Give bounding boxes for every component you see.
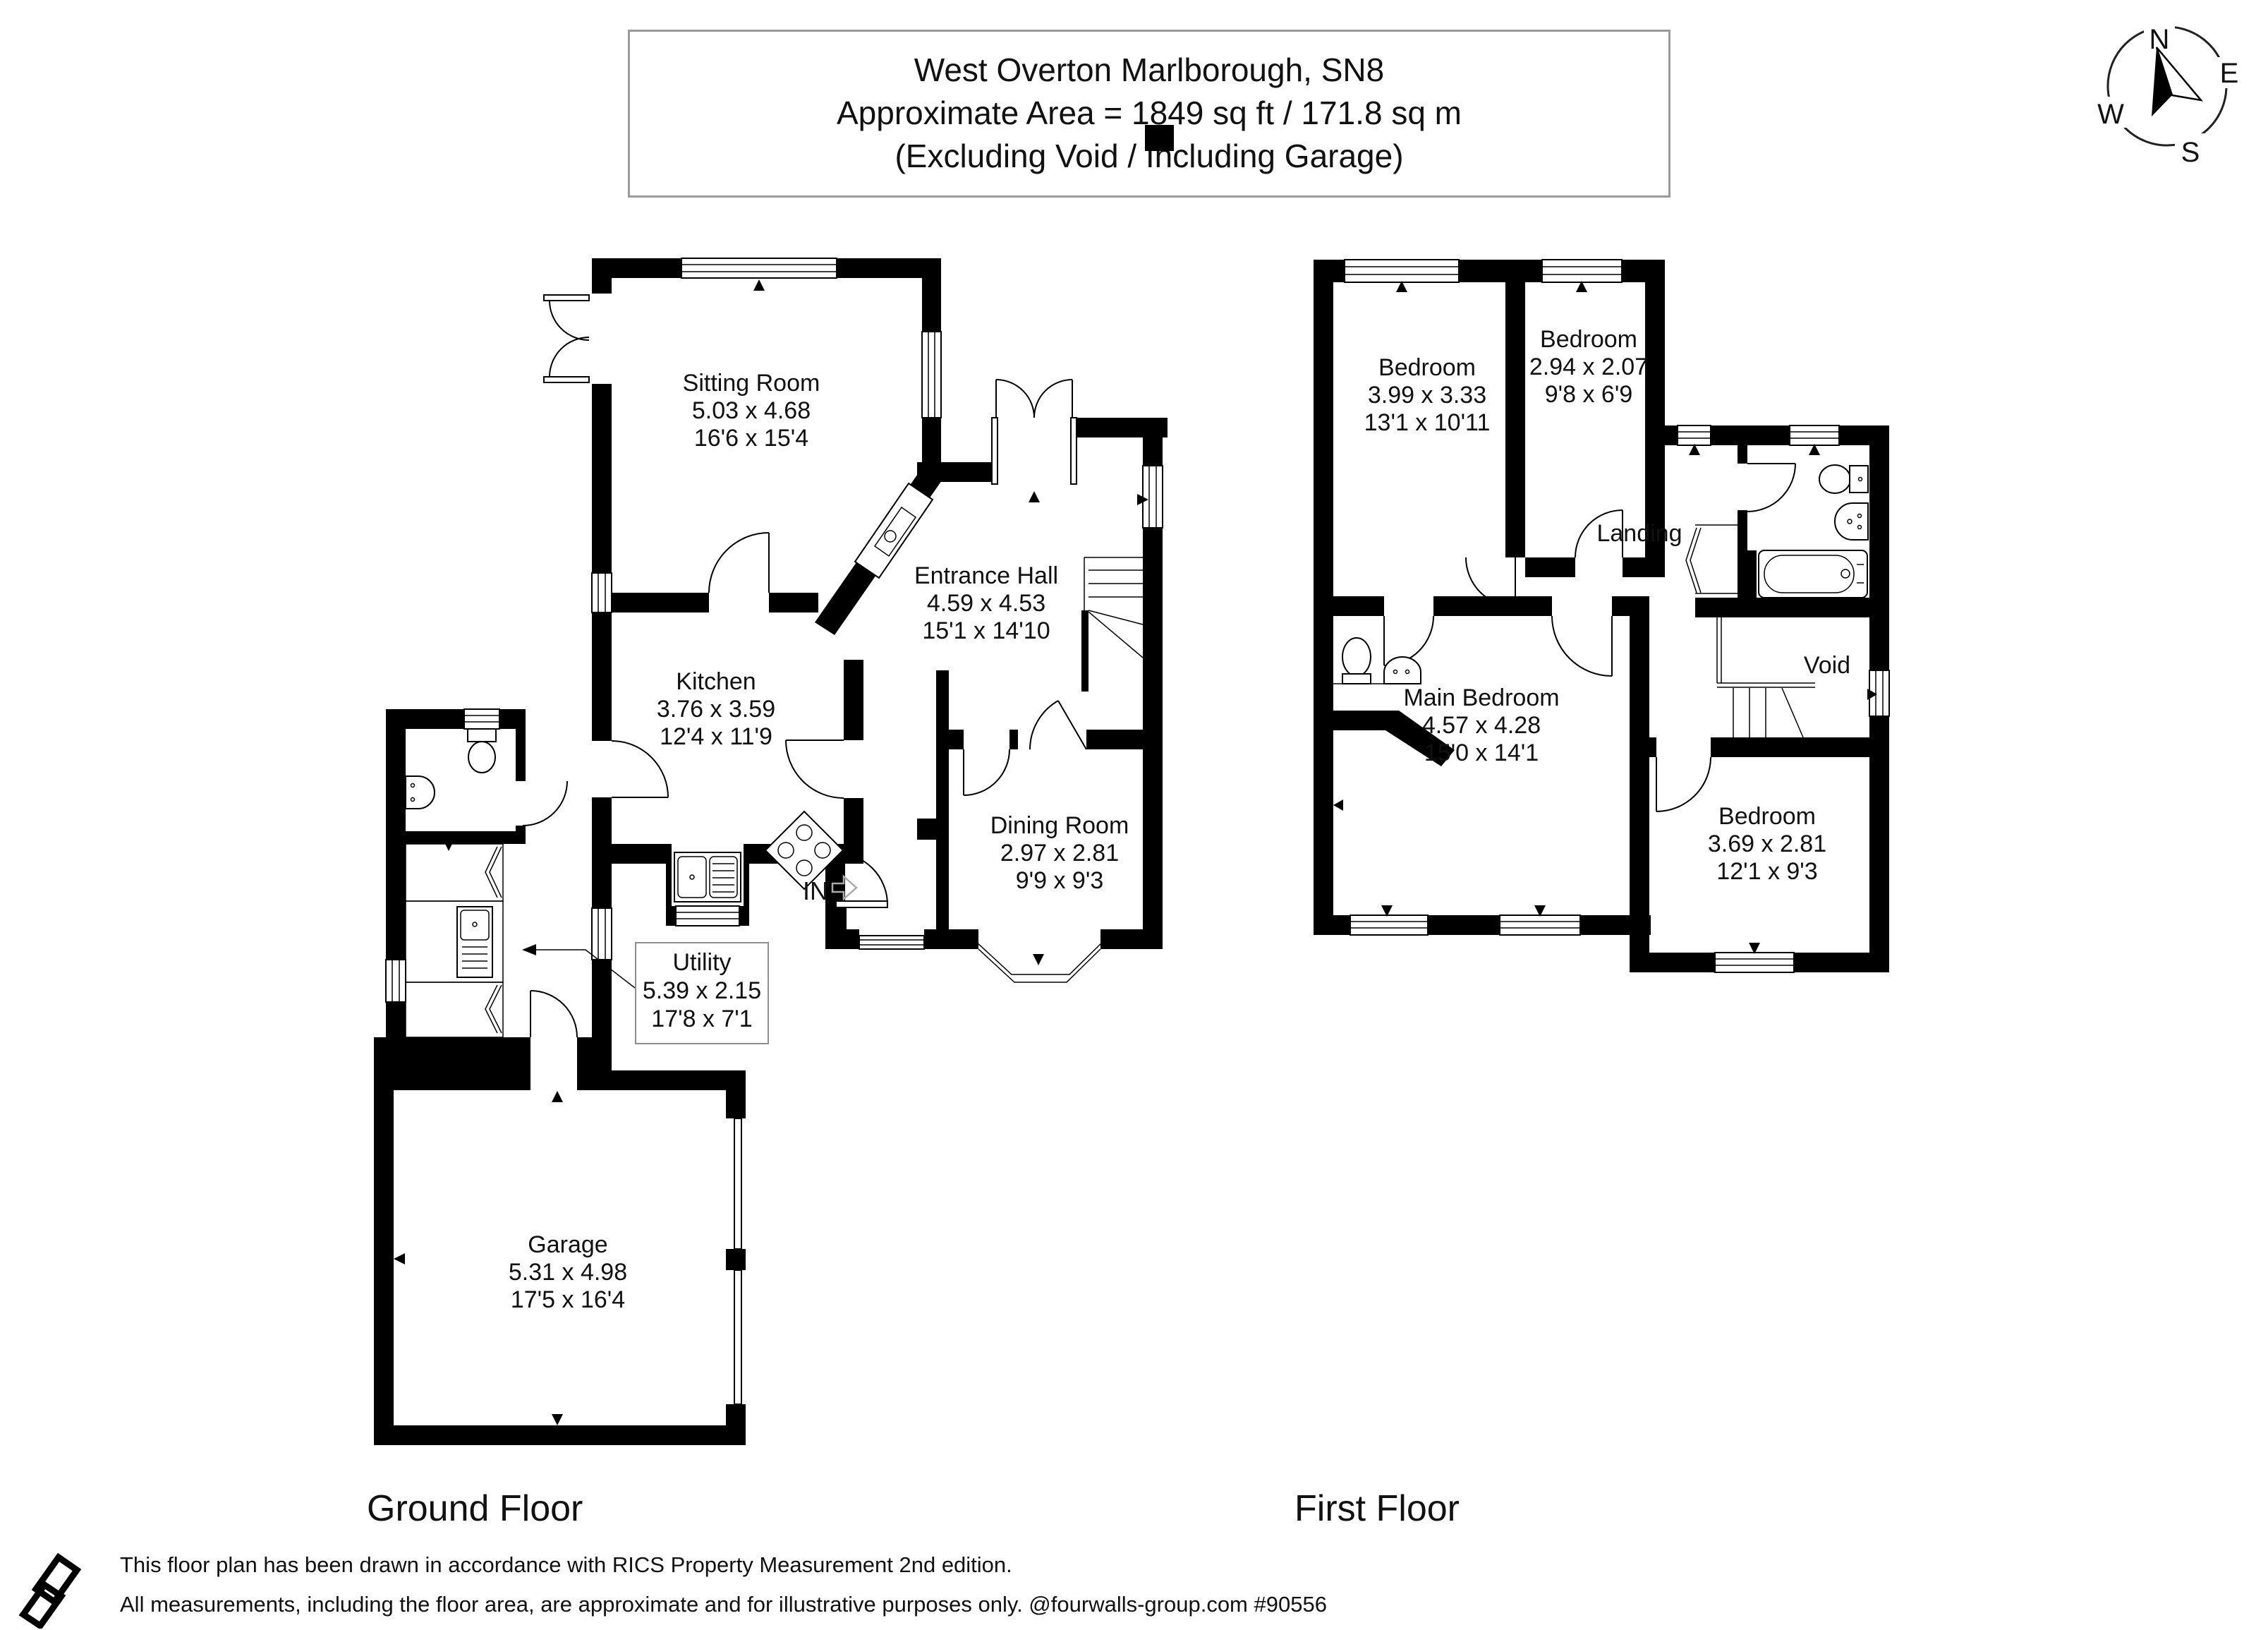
room-label-bedroom-2: Bedroom 2.94 x 2.07 9'8 x 6'9: [1529, 326, 1648, 409]
compass-w: W: [2097, 99, 2124, 130]
kitchen-sink-icon: [674, 852, 741, 902]
entrance-in-label: IN: [803, 876, 828, 906]
floorplan-sheet: West Overton Marlborough, SN8 Approximat…: [0, 0, 2268, 1630]
fourwalls-logo-icon: [12, 1550, 95, 1629]
compass-rose-icon: N E W S: [2085, 18, 2254, 173]
stairs-first: [1717, 608, 1815, 737]
room-label-entrance-hall: Entrance Hall 4.59 x 4.53 15'1 x 14'10: [914, 562, 1058, 645]
room-label-sitting-room: Sitting Room 5.03 x 4.68 16'6 x 15'4: [683, 370, 820, 452]
room-label-main-bedroom: Main Bedroom 4.57 x 4.28 15'0 x 14'1: [1403, 684, 1559, 767]
bathroom-toilet-icon: [1819, 465, 1868, 493]
ground-walls: [374, 125, 1174, 1445]
ground-floor-plan: [367, 120, 1185, 1482]
airing-cupboard: [1686, 525, 1738, 593]
utility-leader-line: [522, 944, 635, 988]
footer-disclaimer-2: All measurements, including the floor ar…: [120, 1592, 1327, 1617]
utility-units: [406, 844, 503, 1037]
first-floor-caption: First Floor: [1294, 1487, 1460, 1530]
room-label-void: Void: [1804, 652, 1850, 680]
utility-sink-icon: [457, 907, 492, 977]
stairs-ground: [1081, 557, 1143, 692]
room-label-dining-room: Dining Room 2.97 x 2.81 9'9 x 9'3: [990, 812, 1129, 895]
room-label-garage: Garage 5.31 x 4.98 17'5 x 16'4: [509, 1231, 627, 1314]
wc-basin-icon: [406, 776, 435, 809]
bathroom-basin-icon: [1835, 503, 1868, 540]
title-address: West Overton Marlborough, SN8: [630, 49, 1668, 92]
ensuite-toilet-icon: [1342, 638, 1371, 684]
footer-disclaimer-1: This floor plan has been drawn in accord…: [120, 1552, 1012, 1578]
compass-e: E: [2220, 58, 2239, 89]
room-label-bedroom-3: Bedroom 3.69 x 2.81 12'1 x 9'3: [1708, 803, 1826, 886]
room-label-utility: Utility 5.39 x 2.15 17'8 x 7'1: [635, 942, 769, 1044]
wc-toilet-icon: [468, 729, 496, 773]
room-label-landing: Landing: [1596, 520, 1682, 548]
room-label-kitchen: Kitchen 3.76 x 3.59 12'4 x 11'9: [657, 668, 775, 751]
compass-s: S: [2181, 137, 2200, 168]
room-label-bedroom-1: Bedroom 3.99 x 3.33 13'1 x 10'11: [1364, 354, 1491, 437]
garage-door: [734, 1118, 741, 1249]
bathtub-icon: [1759, 550, 1867, 598]
ensuite-fixtures: [1333, 638, 1421, 684]
ensuite-basin-icon: [1384, 657, 1421, 684]
ground-floor-caption: Ground Floor: [367, 1487, 583, 1530]
